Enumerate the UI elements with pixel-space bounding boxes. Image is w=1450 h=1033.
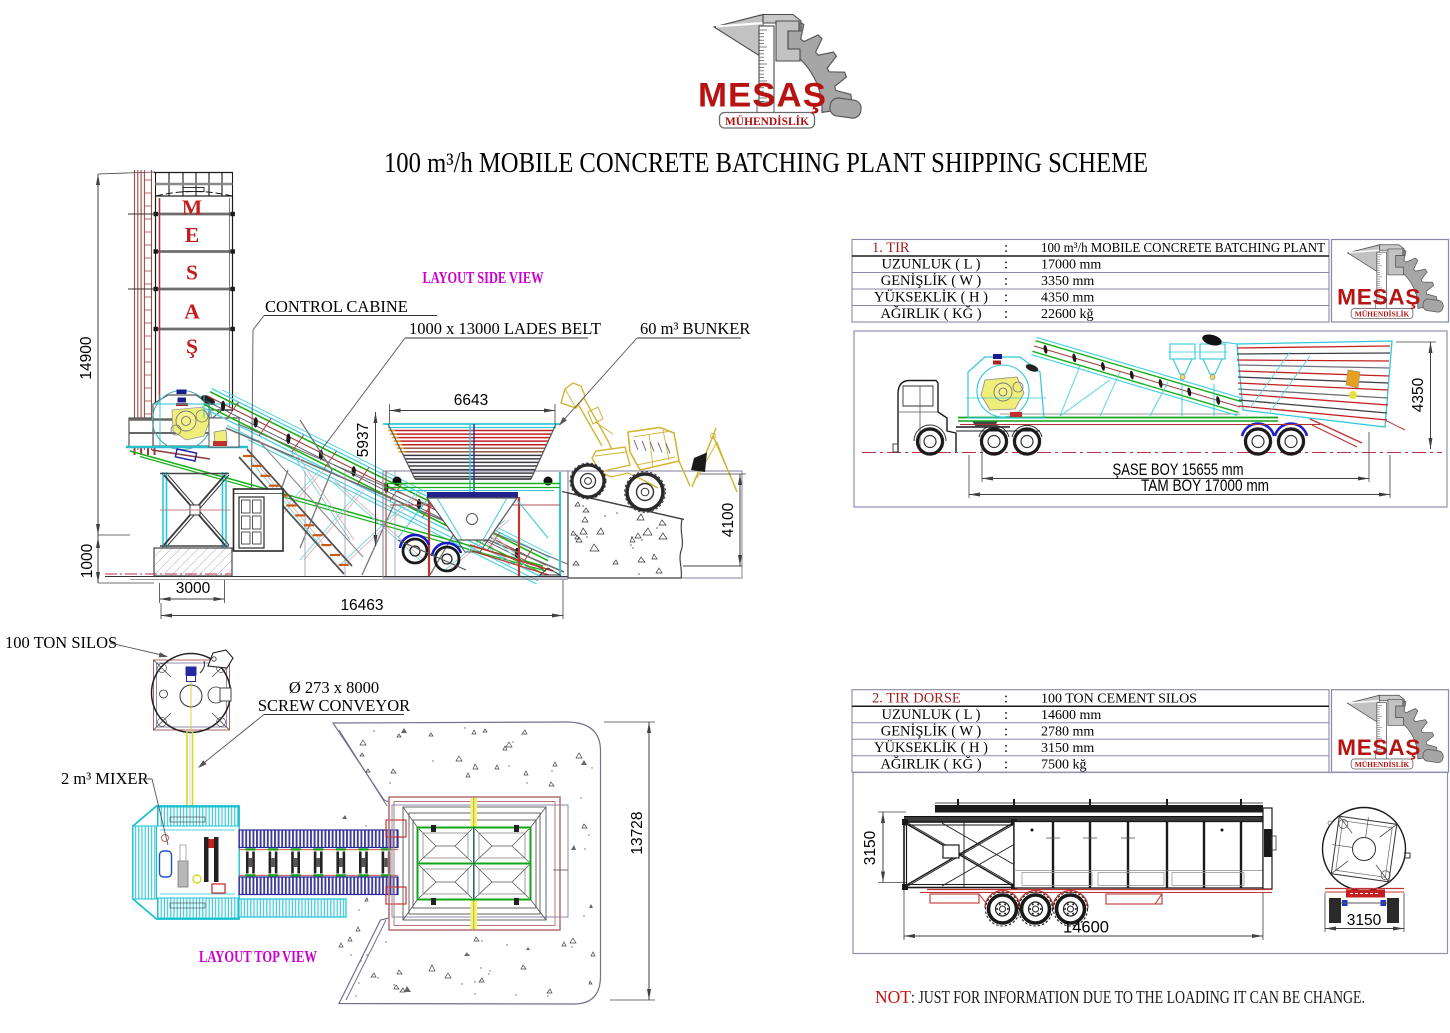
svg-text::: : [1004,257,1008,273]
svg-text:S: S [186,261,198,285]
svg-text:100 TON CEMENT SILOS: 100 TON CEMENT SILOS [1041,691,1197,706]
svg-text:7500 kğ: 7500 kğ [1041,757,1087,772]
svg-text:14900: 14900 [78,336,95,379]
svg-text::: : [1004,740,1008,756]
svg-text:17000 mm: 17000 mm [1041,258,1101,273]
svg-text:14600: 14600 [1063,919,1109,937]
svg-text::: : [1004,690,1008,706]
svg-text:22600 kğ: 22600 kğ [1041,307,1094,322]
svg-text:3150: 3150 [862,830,879,865]
svg-text:Ş: Ş [186,335,198,359]
svg-text::: : [1004,707,1008,723]
svg-text:100 m³/h MOBILE CONCRETE BATCH: 100 m³/h MOBILE CONCRETE BATCHING PLANT … [384,148,1148,179]
svg-text:5937: 5937 [355,423,372,457]
svg-text::: : [1004,756,1008,772]
svg-text:GENİŞLİK ( W ): GENİŞLİK ( W ) [881,273,982,289]
svg-text::: : [1004,723,1008,739]
svg-text:100 TON SILOS: 100 TON SILOS [5,633,117,652]
svg-text::: : [1004,306,1008,322]
svg-text:SCREW CONVEYOR: SCREW CONVEYOR [258,696,410,715]
svg-text:TAM BOY 17000 mm: TAM BOY 17000 mm [1141,476,1269,495]
svg-text:1. TIR: 1. TIR [872,240,910,256]
svg-text:Ø 273 x 8000: Ø 273 x 8000 [289,678,379,697]
svg-text:AĞIRLIK ( KĞ ): AĞIRLIK ( KĞ ) [880,755,981,772]
svg-text:A: A [184,300,200,324]
svg-text:100 m³/h MOBILE CONCRETE BATCH: 100 m³/h MOBILE CONCRETE BATCHING PLANT [1041,241,1325,256]
svg-text:E: E [185,223,199,247]
svg-text:M: M [182,196,202,220]
svg-text:1000: 1000 [79,543,96,578]
svg-text:16463: 16463 [340,597,383,614]
svg-text:UZUNLUK ( L ): UZUNLUK ( L ) [882,707,981,723]
svg-text:AĞIRLIK ( KĞ ): AĞIRLIK ( KĞ ) [880,305,981,322]
svg-text:NOT: JUST FOR INFORMATION DUE: NOT: JUST FOR INFORMATION DUE TO THE LOA… [875,987,1365,1007]
svg-text:4100: 4100 [720,502,737,537]
svg-text:3150: 3150 [1347,912,1382,929]
svg-text:13728: 13728 [629,811,646,854]
svg-text:YÜKSEKLİK ( H ): YÜKSEKLİK ( H ) [874,739,988,756]
svg-text:2 m³ MIXER: 2 m³ MIXER [61,769,148,788]
svg-text:4350: 4350 [1410,377,1427,412]
svg-text::: : [1004,290,1008,306]
svg-text:LAYOUT TOP VIEW: LAYOUT TOP VIEW [199,947,317,966]
svg-text:LAYOUT SIDE VIEW: LAYOUT SIDE VIEW [423,268,544,287]
svg-text:GENİŞLİK ( W ): GENİŞLİK ( W ) [881,723,982,739]
svg-text:UZUNLUK ( L ): UZUNLUK ( L ) [882,257,981,273]
svg-text:CONTROL CABINE: CONTROL CABINE [265,297,408,316]
svg-text:60 m³ BUNKER: 60 m³ BUNKER [640,319,750,338]
svg-text:3350 mm: 3350 mm [1041,274,1094,289]
svg-text:14600 mm: 14600 mm [1041,708,1101,723]
svg-text:2. TIR DORSE: 2. TIR DORSE [872,690,961,706]
svg-text:3150 mm: 3150 mm [1041,741,1094,756]
svg-text:YÜKSEKLİK ( H ): YÜKSEKLİK ( H ) [874,289,988,306]
svg-text:2780 mm: 2780 mm [1041,724,1094,739]
svg-text:1000 x 13000 LADES BELT: 1000 x 13000 LADES BELT [409,319,601,338]
svg-text:4350 mm: 4350 mm [1041,291,1094,306]
svg-text:6643: 6643 [454,392,488,409]
svg-text:3000: 3000 [176,580,211,597]
svg-text::: : [1004,240,1008,256]
svg-text::: : [1004,273,1008,289]
